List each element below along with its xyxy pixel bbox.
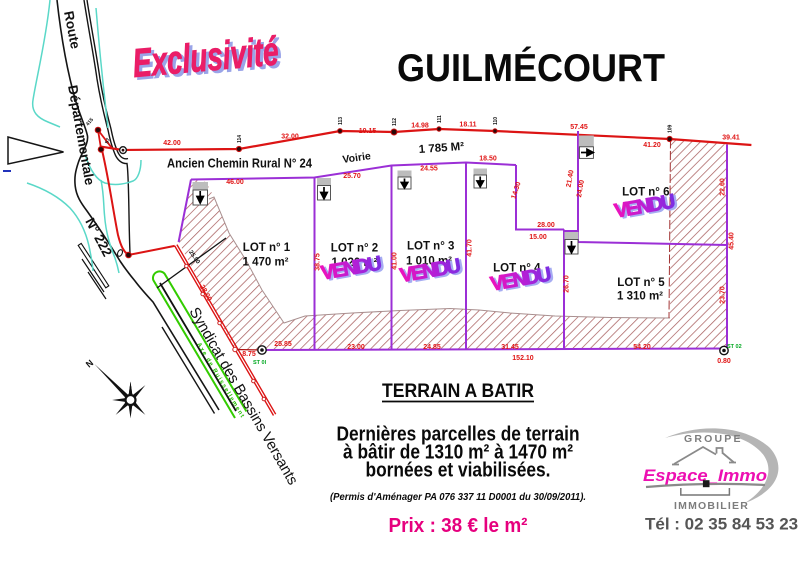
svg-text:32.00: 32.00 [281, 134, 299, 141]
svg-text:23.70: 23.70 [720, 286, 727, 304]
svg-text:23.00: 23.00 [347, 344, 365, 351]
svg-text:(Permis d'Aménager PA 076 337: (Permis d'Aménager PA 076 337 11 D0001 d… [330, 491, 586, 503]
svg-text:109: 109 [668, 124, 674, 133]
svg-text:57.45: 57.45 [570, 124, 588, 131]
svg-text:14.98: 14.98 [411, 123, 429, 130]
svg-text:bornées et viabilisées.: bornées et viabilisées. [366, 459, 551, 482]
svg-text:31.45: 31.45 [501, 344, 519, 351]
svg-text:111: 111 [437, 115, 443, 123]
svg-text:152.10: 152.10 [512, 355, 534, 362]
svg-text:110: 110 [493, 117, 499, 125]
svg-text:IMMOBILIER: IMMOBILIER [674, 500, 749, 512]
svg-text:45.40: 45.40 [729, 232, 736, 250]
svg-text:54.20: 54.20 [633, 344, 651, 351]
svg-text:22.60: 22.60 [720, 178, 727, 196]
svg-text:LOT n° 3: LOT n° 3 [407, 241, 454, 253]
svg-text:18.11: 18.11 [459, 122, 476, 129]
svg-text:39.41: 39.41 [722, 135, 740, 142]
svg-text:GUILMÉCOURT: GUILMÉCOURT [397, 46, 665, 90]
svg-text:24.85: 24.85 [423, 344, 441, 351]
svg-text:Prix : 38 € le m²: Prix : 38 € le m² [389, 515, 528, 537]
svg-text:LOT n° 1: LOT n° 1 [243, 242, 291, 254]
svg-text:26.70: 26.70 [564, 275, 571, 293]
svg-text:41.70: 41.70 [467, 239, 474, 257]
svg-text:24.55: 24.55 [420, 166, 438, 173]
svg-text:15.00: 15.00 [529, 234, 547, 241]
svg-text:46.00: 46.00 [226, 179, 244, 186]
svg-text:25.70: 25.70 [343, 173, 361, 180]
svg-text:LOT n° 2: LOT n° 2 [331, 243, 378, 255]
svg-text:112: 112 [392, 118, 398, 126]
svg-text:41.20: 41.20 [643, 142, 661, 149]
svg-text:ST 02: ST 02 [727, 344, 742, 350]
svg-text:1 310 m²: 1 310 m² [617, 291, 663, 303]
svg-text:Ancien Chemin Rural N° 24: Ancien Chemin Rural N° 24 [167, 157, 312, 171]
svg-text:8.75: 8.75 [242, 351, 256, 358]
svg-text:41.00: 41.00 [392, 252, 399, 270]
svg-text:113: 113 [338, 117, 344, 125]
svg-text:0.80: 0.80 [717, 358, 731, 365]
svg-text:25.85: 25.85 [274, 341, 292, 348]
svg-text:1 470 m²: 1 470 m² [242, 257, 288, 269]
svg-text:18.50: 18.50 [479, 156, 497, 163]
svg-text:28.00: 28.00 [537, 222, 555, 229]
svg-text:ST 0l: ST 0l [253, 360, 267, 366]
svg-text:42.00: 42.00 [163, 140, 181, 147]
svg-text:Tél : 02 35 84 53 23: Tél : 02 35 84 53 23 [645, 515, 798, 534]
svg-text:19.15: 19.15 [359, 128, 377, 135]
svg-text:114: 114 [237, 135, 243, 143]
svg-text:GROUPE: GROUPE [684, 433, 743, 445]
svg-text:LOT n° 5: LOT n° 5 [617, 277, 665, 289]
svg-text:TERRAIN A BATIR: TERRAIN A BATIR [382, 380, 534, 402]
